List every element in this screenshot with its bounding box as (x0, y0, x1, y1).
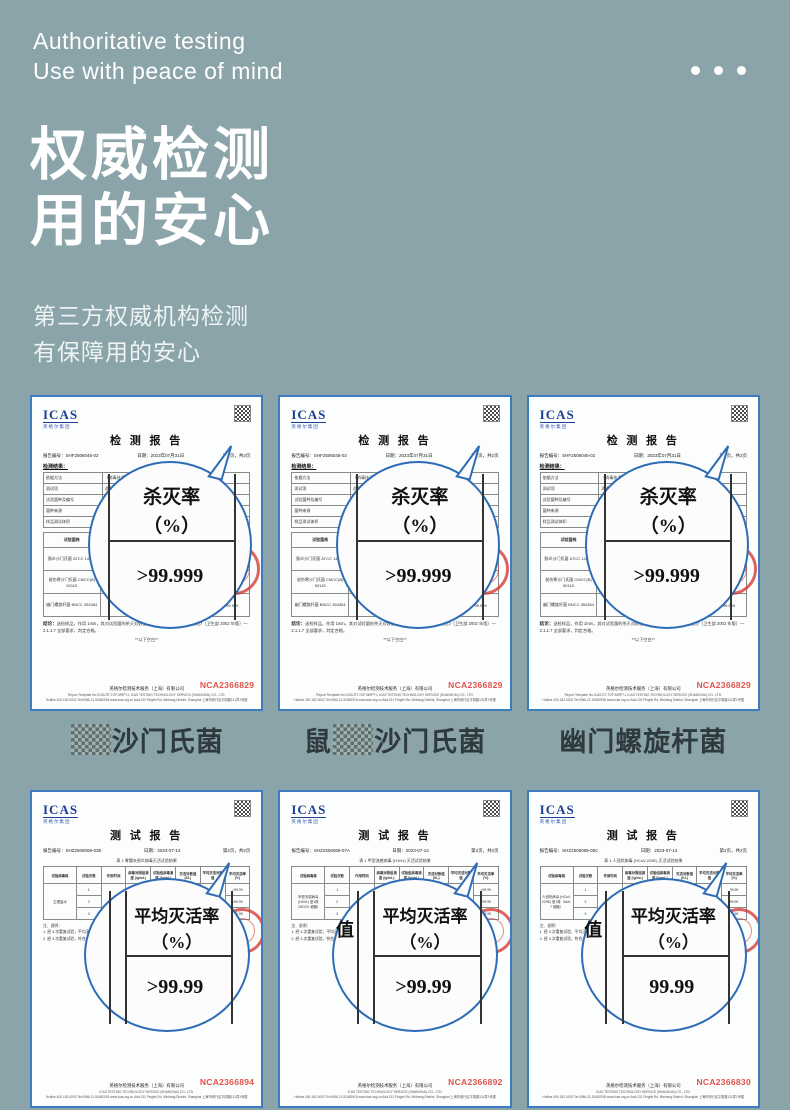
report-pages: 第2页，共2页 (223, 848, 251, 854)
report-date: 日期：2023-07-14 (641, 848, 678, 854)
magnifier-callout: 杀灭率 （%） >99.999 (336, 461, 500, 629)
strain-label: 鼠 ██ 沙门氏菌 (278, 720, 511, 759)
strain-label-prefix: 鼠 (304, 720, 332, 759)
magnified-left-column-line (109, 891, 111, 1025)
icas-logo-text: ICAS (43, 803, 78, 818)
censored-block: ██ (71, 724, 111, 755)
report-date: 日期：2023年07月31日 (634, 453, 681, 459)
callout-tail-icon (699, 861, 731, 897)
magnified-header: 杀灭率 （%） (596, 483, 740, 542)
report-number: 报告编号：SHZ2506069-05C (540, 848, 599, 854)
test-report-certificate: ICAS 英格尔集团 检 测 报 告 报告编号：SHF2506046-02 日期… (30, 395, 263, 711)
footer-fine-print: Report Template No.ICAS-RT-TOP-MRPT-L IC… (286, 693, 503, 703)
report-number: 报告编号：SHZ2506069-03E (43, 848, 102, 854)
page-title: 权威检测 用的安心 (30, 122, 274, 254)
test-report-certificate: ICAS 英格尔集团 测 试 报 告 报告编号：SHZ2506069-07A 日… (278, 790, 511, 1108)
report-meta: 报告编号：SHZ2506069-07A 日期：2023-07-14 第2页，共2… (291, 848, 498, 854)
magnified-left-char: 值 (336, 916, 354, 942)
report-meta: 报告编号：SHZ2506069-05C 日期：2023-07-14 第2页，共2… (540, 848, 747, 854)
certificate-number: NCA2366829 (696, 680, 751, 690)
icas-logo-text: ICAS (43, 408, 78, 423)
icas-logo-text: ICAS (540, 408, 575, 423)
report-date: 日期：2023年07月31日 (137, 453, 184, 459)
magnifier-callout: 值 平均灭活率 （%） >99.99 (332, 878, 498, 1032)
report-number: 报告编号：SHZ2506069-07A (291, 848, 350, 854)
qr-code-icon (235, 406, 250, 421)
dot-icon (714, 66, 723, 75)
kill-rate-value: >99.999 (587, 565, 747, 588)
callout-tail-icon (202, 861, 234, 897)
page-subtitle-line2: 有保障用的安心 (33, 334, 249, 370)
callout-tail-icon (450, 861, 482, 897)
report-pages: 第2页，共2页 (471, 848, 499, 854)
english-tagline-line2: Use with peace of mind (33, 56, 283, 86)
certificate-row-bottom: ICAS 英格尔集团 测 试 报 告 报告编号：SHZ2506069-03E 日… (0, 790, 790, 1108)
magnifier-callout: 值 平均灭活率 （%） 99.99 (581, 878, 747, 1032)
footer-fine-print: ICAS TESTING TECHNOLOGY SERVICE (SHANGHA… (535, 1090, 752, 1100)
test-report-certificate: ICAS 英格尔集团 测 试 报 告 报告编号：SHZ2506069-03E 日… (30, 790, 263, 1108)
magnified-left-char: 值 (584, 916, 602, 942)
qr-code-icon (235, 801, 250, 816)
report-title: 测 试 报 告 (291, 827, 498, 843)
magnifier-callout: 杀灭率 （%） >99.999 (585, 461, 749, 629)
magnified-header: 杀灭率 （%） (348, 483, 492, 542)
icas-logo: ICAS 英格尔集团 (540, 406, 747, 430)
icas-logo-subtext: 英格尔集团 (291, 424, 498, 430)
certificate-number: NCA2366829 (200, 680, 255, 690)
inactivation-rate-value: 99.99 (599, 976, 745, 999)
certificate-number: NCA2366892 (448, 1077, 503, 1087)
blank-below-note: **以下空白** (540, 637, 747, 643)
certificate-row-top: ICAS 英格尔集团 检 测 报 告 报告编号：SHF2506046-02 日期… (0, 395, 790, 711)
icas-logo: ICAS 英格尔集团 (43, 406, 250, 430)
magnified-header: 平均灭活率 （%） (112, 904, 242, 957)
dot-icon (691, 66, 700, 75)
icas-logo-text: ICAS (291, 803, 326, 818)
magnified-left-column-line (357, 891, 359, 1025)
inactivation-rate-value: >99.99 (102, 976, 248, 999)
strain-label: 幽门螺旋杆菌 (527, 720, 760, 759)
icas-logo-subtext: 英格尔集团 (43, 424, 250, 430)
report-date: 日期：2023年07月31日 (385, 453, 432, 459)
english-tagline-line1: Authoritative testing (33, 26, 283, 56)
page-title-line2: 用的安心 (30, 188, 274, 254)
page-subtitle: 第三方权威机构检测 有保障用的安心 (33, 298, 249, 370)
test-report-certificate: ICAS 英格尔集团 检 测 报 告 报告编号：SHF2506046-02 日期… (278, 395, 511, 711)
magnified-left-column-line (605, 891, 607, 1025)
report-title: 测 试 报 告 (43, 827, 250, 843)
strain-label-text: 沙门氏菌 (374, 720, 486, 759)
report-number: 报告编号：SHF2506046-02 (43, 453, 99, 459)
qr-code-icon (484, 801, 499, 816)
icas-logo: ICAS 英格尔集团 (291, 406, 498, 430)
icas-logo-subtext: 英格尔集团 (540, 424, 747, 430)
report-date: 日期：2023-07-14 (392, 848, 429, 854)
callout-tail-icon (452, 444, 484, 480)
dot-icon (737, 66, 746, 75)
qr-code-icon (484, 406, 499, 421)
report-number: 报告编号：SHF2506046-02 (540, 453, 596, 459)
english-tagline: Authoritative testing Use with peace of … (33, 26, 283, 86)
kill-rate-value: >99.999 (90, 565, 250, 588)
callout-tail-icon (701, 444, 733, 480)
magnified-header: 平均灭活率 （%） (360, 904, 490, 957)
page-title-line1: 权威检测 (30, 122, 274, 188)
test-report-certificate: ICAS 英格尔集团 测 试 报 告 报告编号：SHZ2506069-05C 日… (527, 790, 760, 1108)
blank-below-note: **以下空白** (291, 637, 498, 643)
inactivation-rate-value: >99.99 (351, 976, 497, 999)
page: Authoritative testing Use with peace of … (0, 0, 790, 1110)
icas-logo: ICAS 英格尔集团 (43, 801, 250, 825)
ellipsis-dots-icon (691, 66, 746, 75)
icas-logo: ICAS 英格尔集团 (540, 801, 747, 825)
report-title: 测 试 报 告 (540, 827, 747, 843)
certificate-number: NCA2366830 (696, 1077, 751, 1087)
footer-fine-print: ICAS TESTING TECHNOLOGY SERVICE (SHANGHA… (38, 1090, 255, 1100)
magnified-header: 平均灭活率 （%） (609, 904, 739, 957)
icas-logo: ICAS 英格尔集团 (291, 801, 498, 825)
icas-logo-subtext: 英格尔集团 (291, 819, 498, 825)
censored-block: ██ (333, 724, 373, 755)
test-report-certificate: ICAS 英格尔集团 检 测 报 告 报告编号：SHF2506046-02 日期… (527, 395, 760, 711)
report-date: 日期：2023-07-14 (144, 848, 181, 854)
icas-logo-text: ICAS (291, 408, 326, 423)
magnifier-callout: 平均灭活率 （%） >99.99 (84, 878, 250, 1032)
magnifier-callout: 杀灭率 （%） >99.999 (88, 461, 252, 629)
page-subtitle-line1: 第三方权威机构检测 (33, 298, 249, 334)
blank-below-note: **以下空白** (43, 637, 250, 643)
certificate-number: NCA2366894 (200, 1077, 255, 1087)
certificate-number: NCA2366829 (448, 680, 503, 690)
icas-logo-text: ICAS (540, 803, 575, 818)
strain-label-text: 沙门氏菌 (112, 720, 224, 759)
footer-fine-print: Report Template No.ICAS-RT-TOP-MRPT-L IC… (535, 693, 752, 703)
footer-fine-print: ICAS TESTING TECHNOLOGY SERVICE (SHANGHA… (286, 1090, 503, 1100)
report-number: 报告编号：SHF2506046-02 (291, 453, 347, 459)
strain-label: ██ 沙门氏菌 (30, 720, 263, 759)
qr-code-icon (732, 406, 747, 421)
footer-fine-print: Report Template No.ICAS-RT-TOP-MRPT-L IC… (38, 693, 255, 703)
callout-tail-icon (204, 444, 236, 480)
report-meta: 报告编号：SHZ2506069-03E 日期：2023-07-14 第2页，共2… (43, 848, 250, 854)
kill-rate-value: >99.999 (338, 565, 498, 588)
qr-code-icon (732, 801, 747, 816)
strain-label-text: 幽门螺旋杆菌 (559, 720, 727, 759)
magnified-header: 杀灭率 （%） (100, 483, 244, 542)
icas-logo-subtext: 英格尔集团 (43, 819, 250, 825)
icas-logo-subtext: 英格尔集团 (540, 819, 747, 825)
report-pages: 第2页，共2页 (719, 848, 747, 854)
strain-label-row: ██ 沙门氏菌 鼠 ██ 沙门氏菌 幽门螺旋杆菌 (0, 720, 790, 759)
